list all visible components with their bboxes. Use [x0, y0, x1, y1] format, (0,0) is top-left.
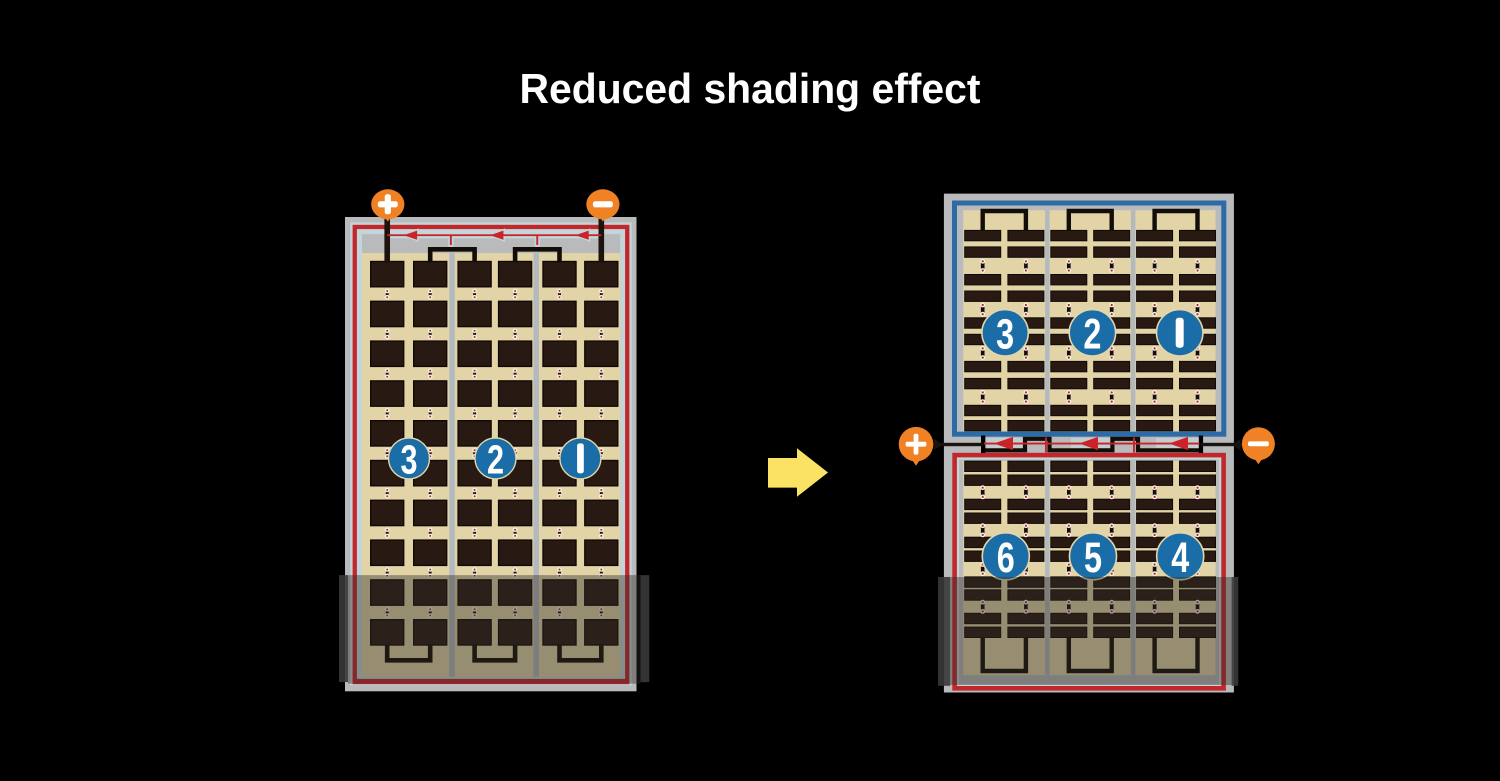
svg-text:3: 3	[996, 311, 1014, 358]
svg-text:2: 2	[487, 436, 504, 482]
svg-text:3: 3	[401, 436, 418, 482]
svg-text:5: 5	[1084, 535, 1102, 582]
svg-text:Reduced shading effect: Reduced shading effect	[520, 65, 981, 112]
svg-text:2: 2	[1083, 311, 1101, 358]
svg-text:6: 6	[997, 535, 1015, 582]
svg-text:4: 4	[1171, 535, 1189, 582]
